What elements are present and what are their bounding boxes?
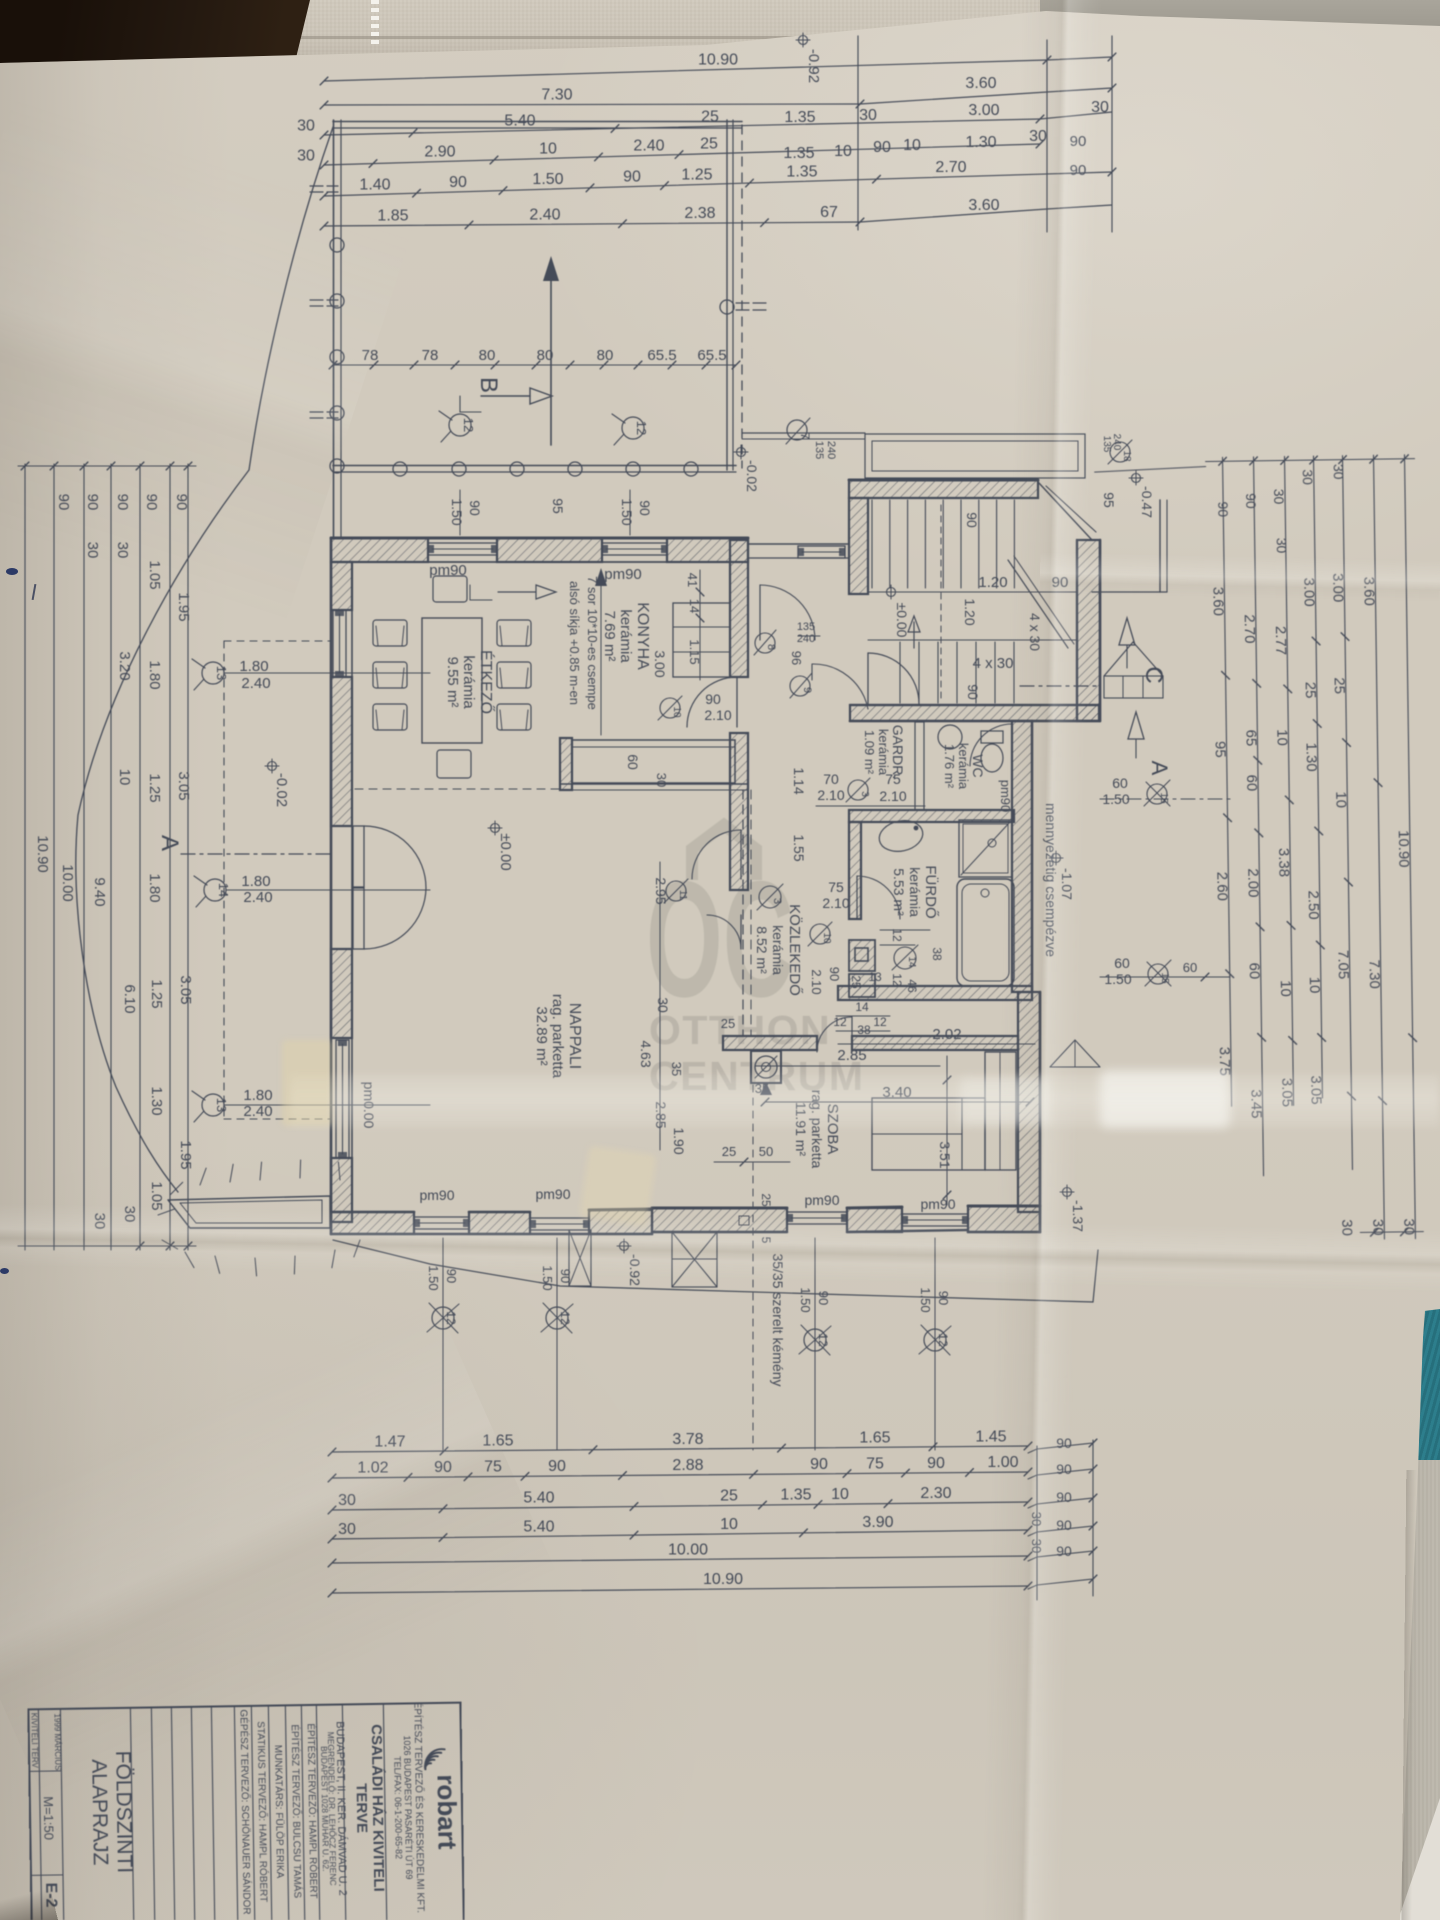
svg-text:9: 9 bbox=[801, 687, 813, 693]
svg-text:90: 90 bbox=[637, 500, 653, 516]
svg-text:25: 25 bbox=[701, 108, 719, 125]
svg-text:1.40: 1.40 bbox=[359, 176, 390, 193]
svg-text:25: 25 bbox=[1302, 682, 1319, 699]
svg-text:1.76 m²: 1.76 m² bbox=[942, 744, 957, 789]
svg-text:1.30: 1.30 bbox=[965, 134, 996, 151]
svg-text:90: 90 bbox=[1215, 501, 1231, 517]
svg-text:10: 10 bbox=[1306, 977, 1323, 994]
svg-text:12: 12 bbox=[833, 1015, 847, 1029]
svg-text:32.89 m²: 32.89 m² bbox=[533, 1006, 550, 1065]
svg-text:30: 30 bbox=[654, 773, 669, 787]
svg-text:-0.92: -0.92 bbox=[805, 49, 822, 83]
svg-text:1.95: 1.95 bbox=[177, 1140, 194, 1169]
svg-text:1.80: 1.80 bbox=[146, 660, 163, 689]
svg-text:80: 80 bbox=[479, 347, 496, 364]
svg-text:96: 96 bbox=[789, 651, 804, 665]
svg-text:30: 30 bbox=[297, 148, 315, 165]
svg-text:90: 90 bbox=[873, 139, 891, 156]
svg-text:1.50: 1.50 bbox=[918, 1287, 933, 1312]
svg-text:1.50: 1.50 bbox=[449, 498, 465, 525]
svg-text:90: 90 bbox=[927, 1455, 945, 1472]
svg-text:90: 90 bbox=[936, 1291, 951, 1305]
svg-text:B: B bbox=[475, 377, 502, 393]
svg-text:2.40: 2.40 bbox=[243, 889, 272, 906]
svg-text:2.70: 2.70 bbox=[935, 159, 966, 176]
svg-text:1.25: 1.25 bbox=[146, 773, 163, 802]
svg-text:2.00: 2.00 bbox=[1244, 868, 1261, 897]
svg-text:10: 10 bbox=[821, 932, 832, 944]
svg-text:38: 38 bbox=[857, 1023, 871, 1037]
svg-text:5.40: 5.40 bbox=[523, 1490, 554, 1507]
svg-text:15: 15 bbox=[1158, 792, 1169, 804]
svg-text:±0.00: ±0.00 bbox=[497, 833, 514, 870]
svg-text:90: 90 bbox=[827, 967, 842, 981]
svg-text:15: 15 bbox=[1159, 972, 1170, 984]
svg-text:90: 90 bbox=[705, 691, 721, 707]
svg-text:75: 75 bbox=[866, 1455, 884, 1472]
svg-text:ÉPÍTÉSZ TERVEZŐ: HAMPL RÓBERT: ÉPÍTÉSZ TERVEZŐ: HAMPL RÓBERT bbox=[305, 1723, 322, 1898]
svg-text:30: 30 bbox=[655, 997, 671, 1013]
svg-text:10: 10 bbox=[539, 140, 557, 157]
svg-text:10: 10 bbox=[1332, 791, 1349, 808]
svg-text:KONYHA: KONYHA bbox=[634, 602, 651, 670]
svg-text:M=1:50: M=1:50 bbox=[41, 1796, 57, 1840]
svg-text:3.60: 3.60 bbox=[965, 75, 996, 92]
svg-text:30: 30 bbox=[1300, 469, 1316, 485]
svg-text:10: 10 bbox=[720, 1516, 738, 1533]
svg-text:2.85: 2.85 bbox=[837, 1047, 866, 1064]
svg-text:1.80: 1.80 bbox=[243, 1087, 272, 1104]
svg-text:30: 30 bbox=[1331, 464, 1347, 480]
svg-text:7.69 m²: 7.69 m² bbox=[601, 611, 618, 662]
svg-text:70: 70 bbox=[823, 771, 839, 787]
svg-text:78: 78 bbox=[422, 347, 439, 364]
svg-text:10: 10 bbox=[1277, 980, 1294, 997]
svg-text:-0.02: -0.02 bbox=[273, 773, 290, 807]
svg-text:1.90: 1.90 bbox=[671, 1127, 687, 1154]
svg-text:50: 50 bbox=[759, 1144, 773, 1159]
svg-text:7 sor 10*10-es csempe: 7 sor 10*10-es csempe bbox=[585, 576, 600, 710]
svg-text:90: 90 bbox=[623, 169, 641, 186]
svg-text:BUDAPEST 1028 MUHAR U. 62.: BUDAPEST 1028 MUHAR U. 62. bbox=[319, 1746, 331, 1872]
svg-text:pm90: pm90 bbox=[804, 1192, 839, 1208]
svg-text:pm90: pm90 bbox=[604, 566, 642, 583]
svg-text:3.00: 3.00 bbox=[968, 102, 999, 119]
svg-text:90: 90 bbox=[449, 174, 467, 191]
svg-text:KÖZLEKEDŐ: KÖZLEKEDŐ bbox=[786, 904, 804, 996]
svg-text:1.50: 1.50 bbox=[798, 1287, 813, 1312]
svg-text:2.10: 2.10 bbox=[809, 969, 824, 994]
svg-text:65.5: 65.5 bbox=[647, 347, 676, 364]
svg-text:-0.02: -0.02 bbox=[744, 460, 760, 492]
svg-text:2.40: 2.40 bbox=[241, 675, 270, 692]
svg-text:10.00: 10.00 bbox=[59, 864, 76, 902]
svg-text:5.53 m²: 5.53 m² bbox=[891, 868, 907, 916]
svg-text:pm90: pm90 bbox=[535, 1186, 570, 1202]
svg-text:alsó síkja +0.85 m-en: alsó síkja +0.85 m-en bbox=[567, 581, 582, 705]
svg-text:A: A bbox=[1147, 761, 1172, 776]
svg-text:10.90: 10.90 bbox=[1395, 830, 1413, 868]
svg-text:3.05: 3.05 bbox=[175, 771, 192, 800]
svg-text:67: 67 bbox=[820, 204, 838, 221]
svg-text:60: 60 bbox=[1183, 960, 1197, 975]
svg-text:2.40: 2.40 bbox=[633, 137, 664, 154]
svg-text:7.30: 7.30 bbox=[1366, 960, 1383, 989]
svg-text:12: 12 bbox=[444, 1311, 458, 1325]
svg-text:3.38: 3.38 bbox=[1275, 848, 1292, 877]
svg-text:rag. parketta: rag. parketta bbox=[549, 994, 566, 1079]
svg-text:13: 13 bbox=[868, 970, 882, 984]
svg-text:10: 10 bbox=[903, 137, 921, 154]
svg-text:9.40: 9.40 bbox=[91, 877, 108, 906]
svg-text:robart: robart bbox=[431, 1774, 462, 1850]
svg-text:7.30: 7.30 bbox=[541, 87, 572, 104]
svg-text:18: 18 bbox=[1121, 450, 1132, 462]
svg-text:14: 14 bbox=[906, 956, 917, 968]
svg-text:1.25: 1.25 bbox=[148, 979, 165, 1008]
svg-text:4.63: 4.63 bbox=[638, 1040, 654, 1067]
svg-text:1.80: 1.80 bbox=[146, 873, 163, 902]
svg-text:30: 30 bbox=[859, 107, 877, 124]
svg-text:12: 12 bbox=[873, 1015, 887, 1029]
svg-text:90: 90 bbox=[965, 684, 981, 700]
svg-text:1.25: 1.25 bbox=[681, 167, 712, 184]
svg-text:2.10: 2.10 bbox=[879, 788, 906, 804]
svg-text:kerámia: kerámia bbox=[876, 729, 891, 776]
svg-text:1.50: 1.50 bbox=[532, 171, 563, 188]
svg-text:25: 25 bbox=[700, 136, 718, 153]
svg-text:95: 95 bbox=[1101, 492, 1117, 508]
svg-text:90: 90 bbox=[810, 1456, 828, 1473]
svg-text:NAPPALI: NAPPALI bbox=[566, 1003, 583, 1069]
svg-text:6.10: 6.10 bbox=[121, 984, 138, 1013]
svg-text:2.40: 2.40 bbox=[529, 206, 560, 223]
svg-text:-0.47: -0.47 bbox=[1139, 486, 1155, 518]
svg-text:2.70: 2.70 bbox=[1241, 614, 1258, 643]
svg-text:3.78: 3.78 bbox=[672, 1431, 703, 1448]
svg-text:1.20: 1.20 bbox=[978, 574, 1007, 591]
svg-text:2.10: 2.10 bbox=[822, 895, 849, 911]
svg-text:90: 90 bbox=[816, 1291, 831, 1305]
svg-text:2.90: 2.90 bbox=[424, 144, 455, 161]
svg-text:3.05: 3.05 bbox=[177, 975, 194, 1004]
svg-text:1.35: 1.35 bbox=[786, 163, 817, 180]
svg-text:30: 30 bbox=[1274, 538, 1290, 554]
svg-text:10: 10 bbox=[831, 1486, 849, 1503]
svg-text:1.50: 1.50 bbox=[619, 498, 635, 525]
svg-text:1.35: 1.35 bbox=[780, 1487, 811, 1504]
svg-text:1.80: 1.80 bbox=[241, 873, 270, 890]
svg-text:95: 95 bbox=[550, 498, 566, 514]
svg-text:60: 60 bbox=[1243, 774, 1260, 791]
svg-text:1.50: 1.50 bbox=[1104, 971, 1131, 987]
svg-text:135: 135 bbox=[813, 441, 825, 459]
svg-text:kerámia: kerámia bbox=[460, 655, 477, 709]
svg-text:2.40: 2.40 bbox=[243, 1103, 272, 1120]
svg-text:1.30: 1.30 bbox=[148, 1086, 165, 1115]
svg-text:1.14: 1.14 bbox=[791, 767, 807, 794]
svg-text:38: 38 bbox=[930, 947, 944, 961]
svg-text:30: 30 bbox=[297, 117, 315, 134]
svg-text:FÜRDŐ: FÜRDŐ bbox=[922, 865, 940, 918]
svg-text:1.55: 1.55 bbox=[791, 834, 807, 861]
svg-text:pm90: pm90 bbox=[419, 1187, 454, 1203]
svg-text:1.09 m²: 1.09 m² bbox=[862, 730, 877, 775]
svg-text:80: 80 bbox=[597, 347, 614, 364]
svg-text:3: 3 bbox=[859, 791, 870, 797]
svg-text:TERVE: TERVE bbox=[353, 1783, 371, 1833]
svg-text:25: 25 bbox=[759, 1193, 773, 1207]
svg-text:12: 12 bbox=[634, 421, 649, 435]
svg-text:10.90: 10.90 bbox=[703, 1571, 743, 1588]
svg-text:7.05: 7.05 bbox=[1334, 950, 1351, 979]
svg-text:240: 240 bbox=[797, 633, 815, 645]
svg-text:pm90: pm90 bbox=[920, 1196, 955, 1212]
svg-text:8: 8 bbox=[765, 644, 777, 650]
svg-text:41: 41 bbox=[685, 573, 700, 587]
svg-text:90: 90 bbox=[964, 512, 980, 528]
svg-text:kerámia: kerámia bbox=[617, 609, 634, 663]
svg-text:240: 240 bbox=[825, 441, 837, 459]
svg-text:TEL/FAX: 06-1-200-65-82: TEL/FAX: 06-1-200-65-82 bbox=[392, 1756, 404, 1859]
svg-text:10.90: 10.90 bbox=[698, 52, 738, 69]
svg-text:60: 60 bbox=[1246, 962, 1263, 979]
svg-text:65.5: 65.5 bbox=[697, 347, 726, 364]
svg-text:1.35: 1.35 bbox=[784, 109, 815, 126]
svg-text:2.38: 2.38 bbox=[684, 205, 715, 222]
svg-text:30: 30 bbox=[1271, 489, 1287, 505]
svg-text:135: 135 bbox=[797, 621, 815, 633]
svg-text:1.30: 1.30 bbox=[1302, 742, 1319, 771]
svg-text:240: 240 bbox=[1111, 434, 1122, 451]
svg-text:10: 10 bbox=[834, 143, 852, 160]
svg-text:3.60: 3.60 bbox=[968, 197, 999, 214]
svg-text:1.65: 1.65 bbox=[859, 1429, 890, 1446]
svg-text:A: A bbox=[156, 835, 183, 851]
svg-text:25: 25 bbox=[721, 1016, 735, 1031]
svg-text:60: 60 bbox=[1114, 955, 1130, 971]
svg-text:8.52 m²: 8.52 m² bbox=[754, 926, 770, 974]
svg-text:2.50: 2.50 bbox=[1305, 890, 1322, 919]
svg-text:60: 60 bbox=[625, 754, 641, 770]
svg-text:12: 12 bbox=[558, 1311, 572, 1325]
svg-text:60: 60 bbox=[1112, 775, 1128, 791]
svg-text:135: 135 bbox=[1101, 436, 1112, 453]
svg-text:2.30: 2.30 bbox=[920, 1485, 951, 1502]
svg-text:90: 90 bbox=[467, 500, 483, 516]
svg-text:12: 12 bbox=[936, 1333, 950, 1347]
svg-text:10: 10 bbox=[1273, 729, 1290, 746]
svg-text:11: 11 bbox=[677, 890, 688, 901]
svg-text:kerámia: kerámia bbox=[956, 743, 971, 790]
svg-text:2.10: 2.10 bbox=[817, 787, 844, 803]
svg-text:25: 25 bbox=[1331, 677, 1348, 694]
svg-text:2.60: 2.60 bbox=[1213, 872, 1230, 901]
svg-text:75: 75 bbox=[828, 879, 844, 895]
svg-text:1.95: 1.95 bbox=[175, 592, 192, 621]
svg-text:3: 3 bbox=[771, 898, 783, 904]
svg-text:1.20: 1.20 bbox=[962, 598, 978, 625]
svg-text:65: 65 bbox=[1242, 729, 1259, 746]
svg-text:10: 10 bbox=[671, 706, 682, 718]
svg-text:3.90: 3.90 bbox=[862, 1514, 893, 1531]
svg-text:kerámia: kerámia bbox=[907, 867, 923, 917]
svg-text:25: 25 bbox=[720, 1487, 738, 1504]
svg-text:10: 10 bbox=[116, 769, 133, 786]
svg-text:2.02: 2.02 bbox=[932, 1026, 961, 1043]
svg-text:90: 90 bbox=[548, 1458, 566, 1475]
svg-text:MUNKATÁRS: FÜLÖP ERIKA: MUNKATÁRS: FÜLÖP ERIKA bbox=[272, 1745, 287, 1879]
svg-text:2.88: 2.88 bbox=[672, 1457, 703, 1474]
svg-text:9.55 m²: 9.55 m² bbox=[444, 657, 461, 708]
svg-text:3.00: 3.00 bbox=[652, 650, 668, 677]
svg-text:90: 90 bbox=[1243, 493, 1259, 509]
svg-text:14: 14 bbox=[855, 1000, 869, 1014]
svg-text:ÉTKEZŐ: ÉTKEZŐ bbox=[477, 650, 496, 714]
svg-text:12: 12 bbox=[816, 1333, 830, 1347]
svg-text:95: 95 bbox=[1211, 741, 1228, 758]
svg-text:12: 12 bbox=[461, 418, 476, 432]
svg-text:25: 25 bbox=[722, 1144, 736, 1159]
svg-text:2.10: 2.10 bbox=[704, 707, 731, 723]
svg-text:10.90: 10.90 bbox=[34, 835, 51, 873]
svg-text:kerámia: kerámia bbox=[770, 925, 786, 975]
svg-text:2.77: 2.77 bbox=[1272, 626, 1289, 655]
svg-text:1.35: 1.35 bbox=[783, 145, 814, 162]
svg-text:10.00: 10.00 bbox=[668, 1541, 708, 1558]
svg-text:3.51: 3.51 bbox=[937, 1141, 953, 1168]
svg-text:GARDR.: GARDR. bbox=[890, 725, 906, 779]
